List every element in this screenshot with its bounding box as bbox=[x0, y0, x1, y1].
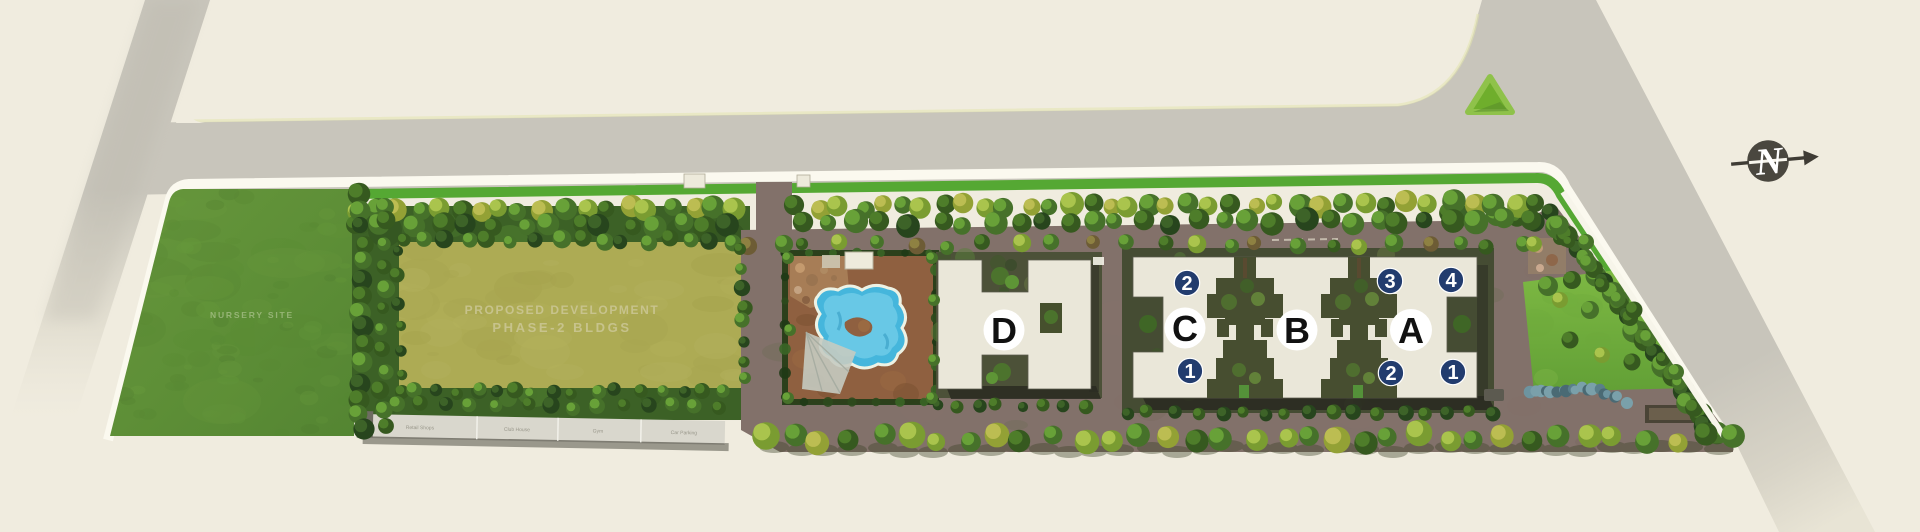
svg-text:2: 2 bbox=[1181, 273, 1192, 295]
svg-text:N: N bbox=[1753, 140, 1787, 184]
svg-text:3: 3 bbox=[1384, 271, 1395, 293]
svg-text:PHASE-2 BLDGS: PHASE-2 BLDGS bbox=[492, 320, 631, 335]
svg-text:1: 1 bbox=[1447, 362, 1458, 384]
svg-text:A: A bbox=[1398, 310, 1424, 351]
svg-text:2: 2 bbox=[1385, 363, 1396, 385]
svg-text:C: C bbox=[1172, 308, 1198, 349]
svg-text:Club House: Club House bbox=[504, 427, 530, 434]
svg-text:1: 1 bbox=[1184, 361, 1195, 383]
svg-text:PROPOSED DEVELOPMENT: PROPOSED DEVELOPMENT bbox=[465, 303, 660, 317]
svg-text:Car Parking: Car Parking bbox=[671, 430, 698, 437]
svg-text:4: 4 bbox=[1445, 270, 1457, 292]
svg-text:NURSERY SITE: NURSERY SITE bbox=[210, 310, 294, 320]
svg-text:Retail Shops: Retail Shops bbox=[406, 425, 435, 432]
svg-text:D: D bbox=[991, 310, 1017, 351]
svg-text:Gym: Gym bbox=[593, 428, 604, 434]
svg-text:B: B bbox=[1284, 310, 1310, 351]
